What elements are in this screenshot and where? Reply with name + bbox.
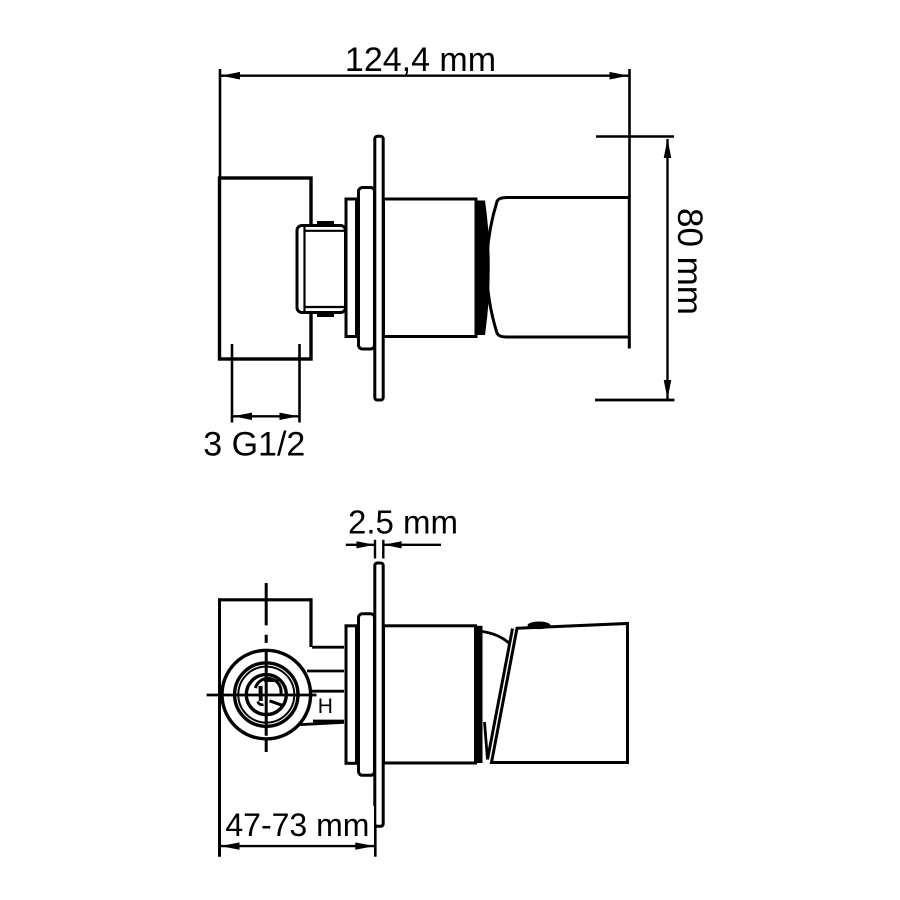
svg-text:80 mm: 80 mm: [670, 208, 709, 315]
svg-text:124,4 mm: 124,4 mm: [345, 41, 496, 79]
svg-text:2.5 mm: 2.5 mm: [348, 504, 458, 541]
svg-text:3 G1/2: 3 G1/2: [203, 426, 305, 464]
svg-text:H: H: [318, 695, 333, 718]
svg-text:47-73 mm: 47-73 mm: [225, 807, 369, 843]
